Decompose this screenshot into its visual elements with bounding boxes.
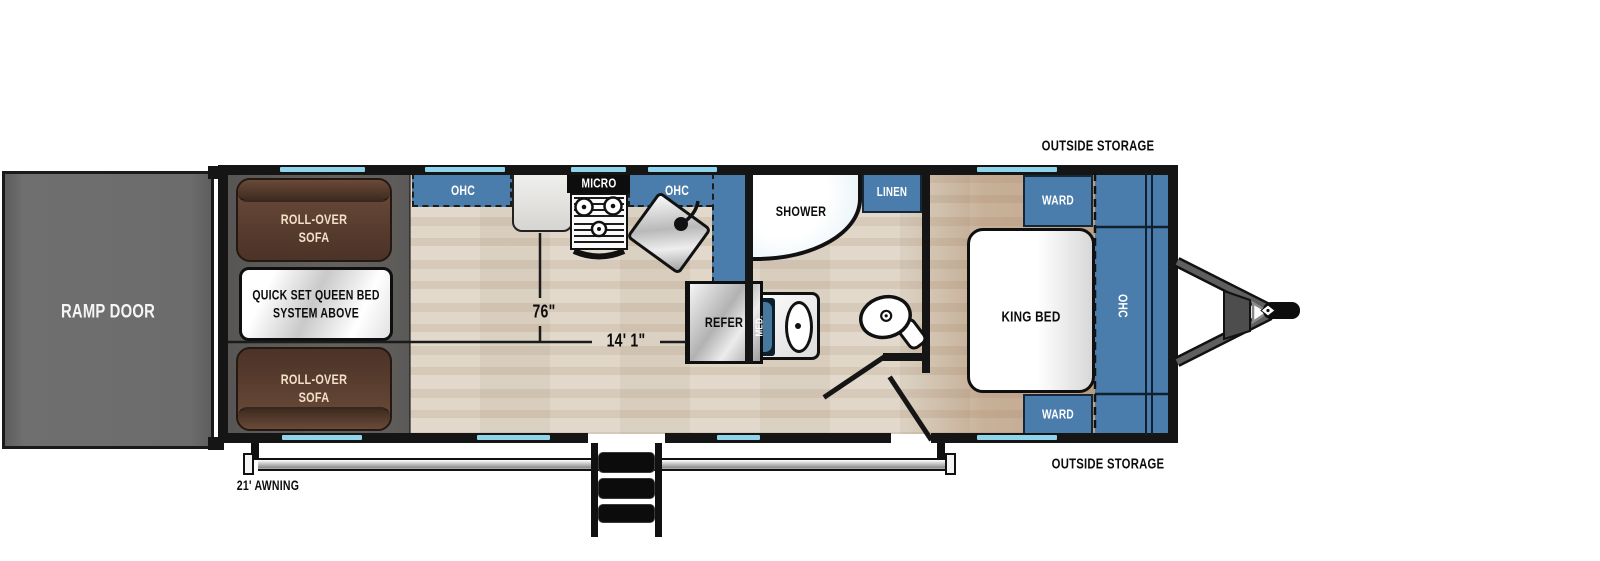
kitchen-counter: [512, 173, 573, 232]
floorplan-canvas: RAMP DOOR ROLL-OVER SOFA QUICK SET QUEEN…: [0, 0, 1600, 561]
dim-width-label: 76": [533, 300, 556, 323]
linen-label: LINEN: [877, 184, 907, 200]
refer-label: REFER: [705, 313, 743, 331]
sofa-bolster: [238, 180, 390, 202]
sofa-top-label: ROLL-OVER SOFA: [281, 210, 347, 246]
window-top-4: [648, 167, 717, 172]
queen-bed-label: QUICK SET QUEEN BED SYSTEM ABOVE: [252, 286, 379, 321]
ohc-left-label: OHC: [451, 182, 475, 200]
window-top-2: [425, 167, 505, 172]
floor-seam: [409, 174, 411, 434]
step-rail-left: [591, 443, 598, 537]
med-label: MED.: [754, 316, 767, 337]
awning-cap-right: [945, 453, 956, 475]
hitch-triangle: [1253, 303, 1268, 322]
stove-grill-upper: [574, 197, 624, 218]
outside-storage-top-label: OUTSIDE STORAGE: [1042, 138, 1155, 157]
step-tread-2: [598, 478, 655, 499]
window-bottom-1: [282, 435, 362, 440]
hitch-coupler: [1263, 302, 1300, 319]
window-bottom-2: [477, 435, 550, 440]
window-top-3: [571, 167, 626, 172]
outside-storage-bottom-label: OUTSIDE STORAGE: [1052, 456, 1165, 475]
trailer-hitch: [1177, 262, 1300, 362]
step-tread-1: [598, 452, 655, 473]
entry-steps: [589, 443, 664, 537]
propane-box: [1224, 291, 1250, 339]
window-top-1: [280, 167, 365, 172]
vanity-drain: [795, 323, 801, 329]
ramp-door-label: RAMP DOOR: [61, 301, 155, 326]
ward-bottom-label: WARD: [1042, 407, 1074, 424]
micro-label: MICRO: [582, 176, 617, 193]
dim-length-label: 14' 1": [607, 329, 646, 352]
awning-label: 21' AWNING: [237, 477, 299, 495]
step-tread-3: [598, 504, 655, 523]
awning-cap-left: [243, 453, 254, 475]
ohc-front-label: OHC: [1114, 294, 1131, 318]
shower-label: SHOWER: [776, 202, 827, 220]
window-bottom-3: [717, 435, 760, 440]
wall-left: [218, 165, 228, 443]
sofa-bottom-label: ROLL-OVER SOFA: [281, 370, 347, 406]
sofa-bolster: [238, 407, 390, 429]
wall-right: [1168, 165, 1178, 443]
front-storage-cabinets: [1095, 172, 1170, 437]
ohc-right-label: OHC: [665, 182, 689, 200]
stove-grill-lower: [574, 223, 624, 244]
step-rail-right: [655, 443, 662, 537]
range-stove: [570, 193, 628, 250]
window-top-5: [977, 167, 1057, 172]
ward-top-label: WARD: [1042, 193, 1074, 210]
pantry-cabinet: [712, 173, 748, 283]
wall-bottom-mid: [665, 433, 891, 443]
king-bed-label: KING BED: [1001, 307, 1060, 327]
window-bottom-4: [977, 435, 1057, 440]
